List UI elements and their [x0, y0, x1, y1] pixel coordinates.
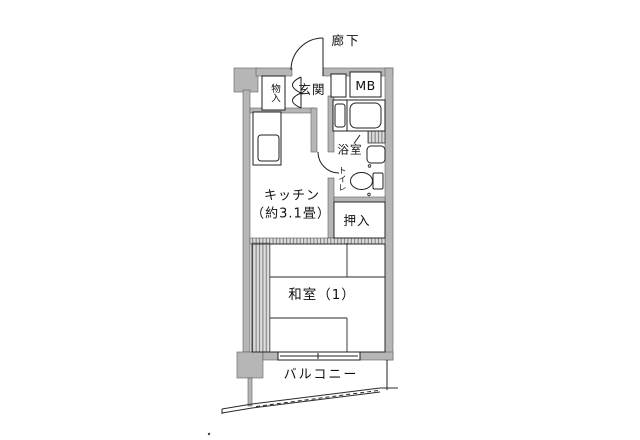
label-kitchen-size: （約3.1畳）: [251, 207, 331, 222]
wall-bottom-right-segment: [360, 352, 393, 360]
wall-left: [243, 90, 250, 352]
balcony-sliding-window: [278, 352, 360, 360]
label-entrance: 玄関: [298, 83, 325, 97]
railing-bottom-line: [222, 392, 380, 413]
floor-plan: 廊下 玄関 物入 MB 浴室 トイレ キッチン （約3.1畳） 押入 和室（1）…: [0, 0, 640, 440]
wall-entrance-hall: [311, 108, 317, 152]
wall-block-bottom-left: [237, 352, 263, 378]
vanity-sink: [367, 146, 385, 163]
wall-top-left-segment: [256, 68, 292, 76]
toilet-bowl: [351, 173, 373, 190]
toilet-tank: [373, 173, 383, 189]
wall-pillar-top-left: [234, 68, 258, 92]
label-kitchen: キッチン: [264, 189, 320, 204]
wash-basin: [335, 104, 345, 127]
drain-dot: [368, 165, 371, 168]
bathtub: [350, 103, 381, 128]
stray-dot: [208, 433, 210, 435]
label-balcony: バルコニー: [284, 369, 359, 384]
wall-bath-closet-divider: [334, 197, 385, 202]
label-toilet: トイレ: [336, 166, 346, 192]
label-meter-box: MB: [355, 78, 375, 92]
kitchen-sink: [258, 135, 279, 161]
japanese-room-side-board-strip: [252, 243, 270, 352]
balcony-left-edge: [248, 378, 252, 406]
label-closet: 押入: [343, 213, 370, 227]
wall-bottom-left-segment: [263, 352, 278, 360]
railing-hatch-line: [256, 391, 378, 407]
label-japanese-room: 和室（1）: [288, 288, 356, 304]
kitchen-counter-with-sink: [253, 112, 281, 165]
utility-box: [331, 74, 346, 97]
label-corridor: 廊下: [331, 34, 360, 48]
entrance-door: [291, 38, 323, 76]
pipe-space-hatch: [368, 131, 385, 143]
label-entrance-storage: 物入: [268, 84, 279, 103]
label-bathroom: 浴室: [338, 143, 363, 156]
drain-dot-2: [368, 193, 371, 196]
entrance-door-swing-arc: [291, 38, 323, 70]
wall-right: [385, 68, 393, 360]
